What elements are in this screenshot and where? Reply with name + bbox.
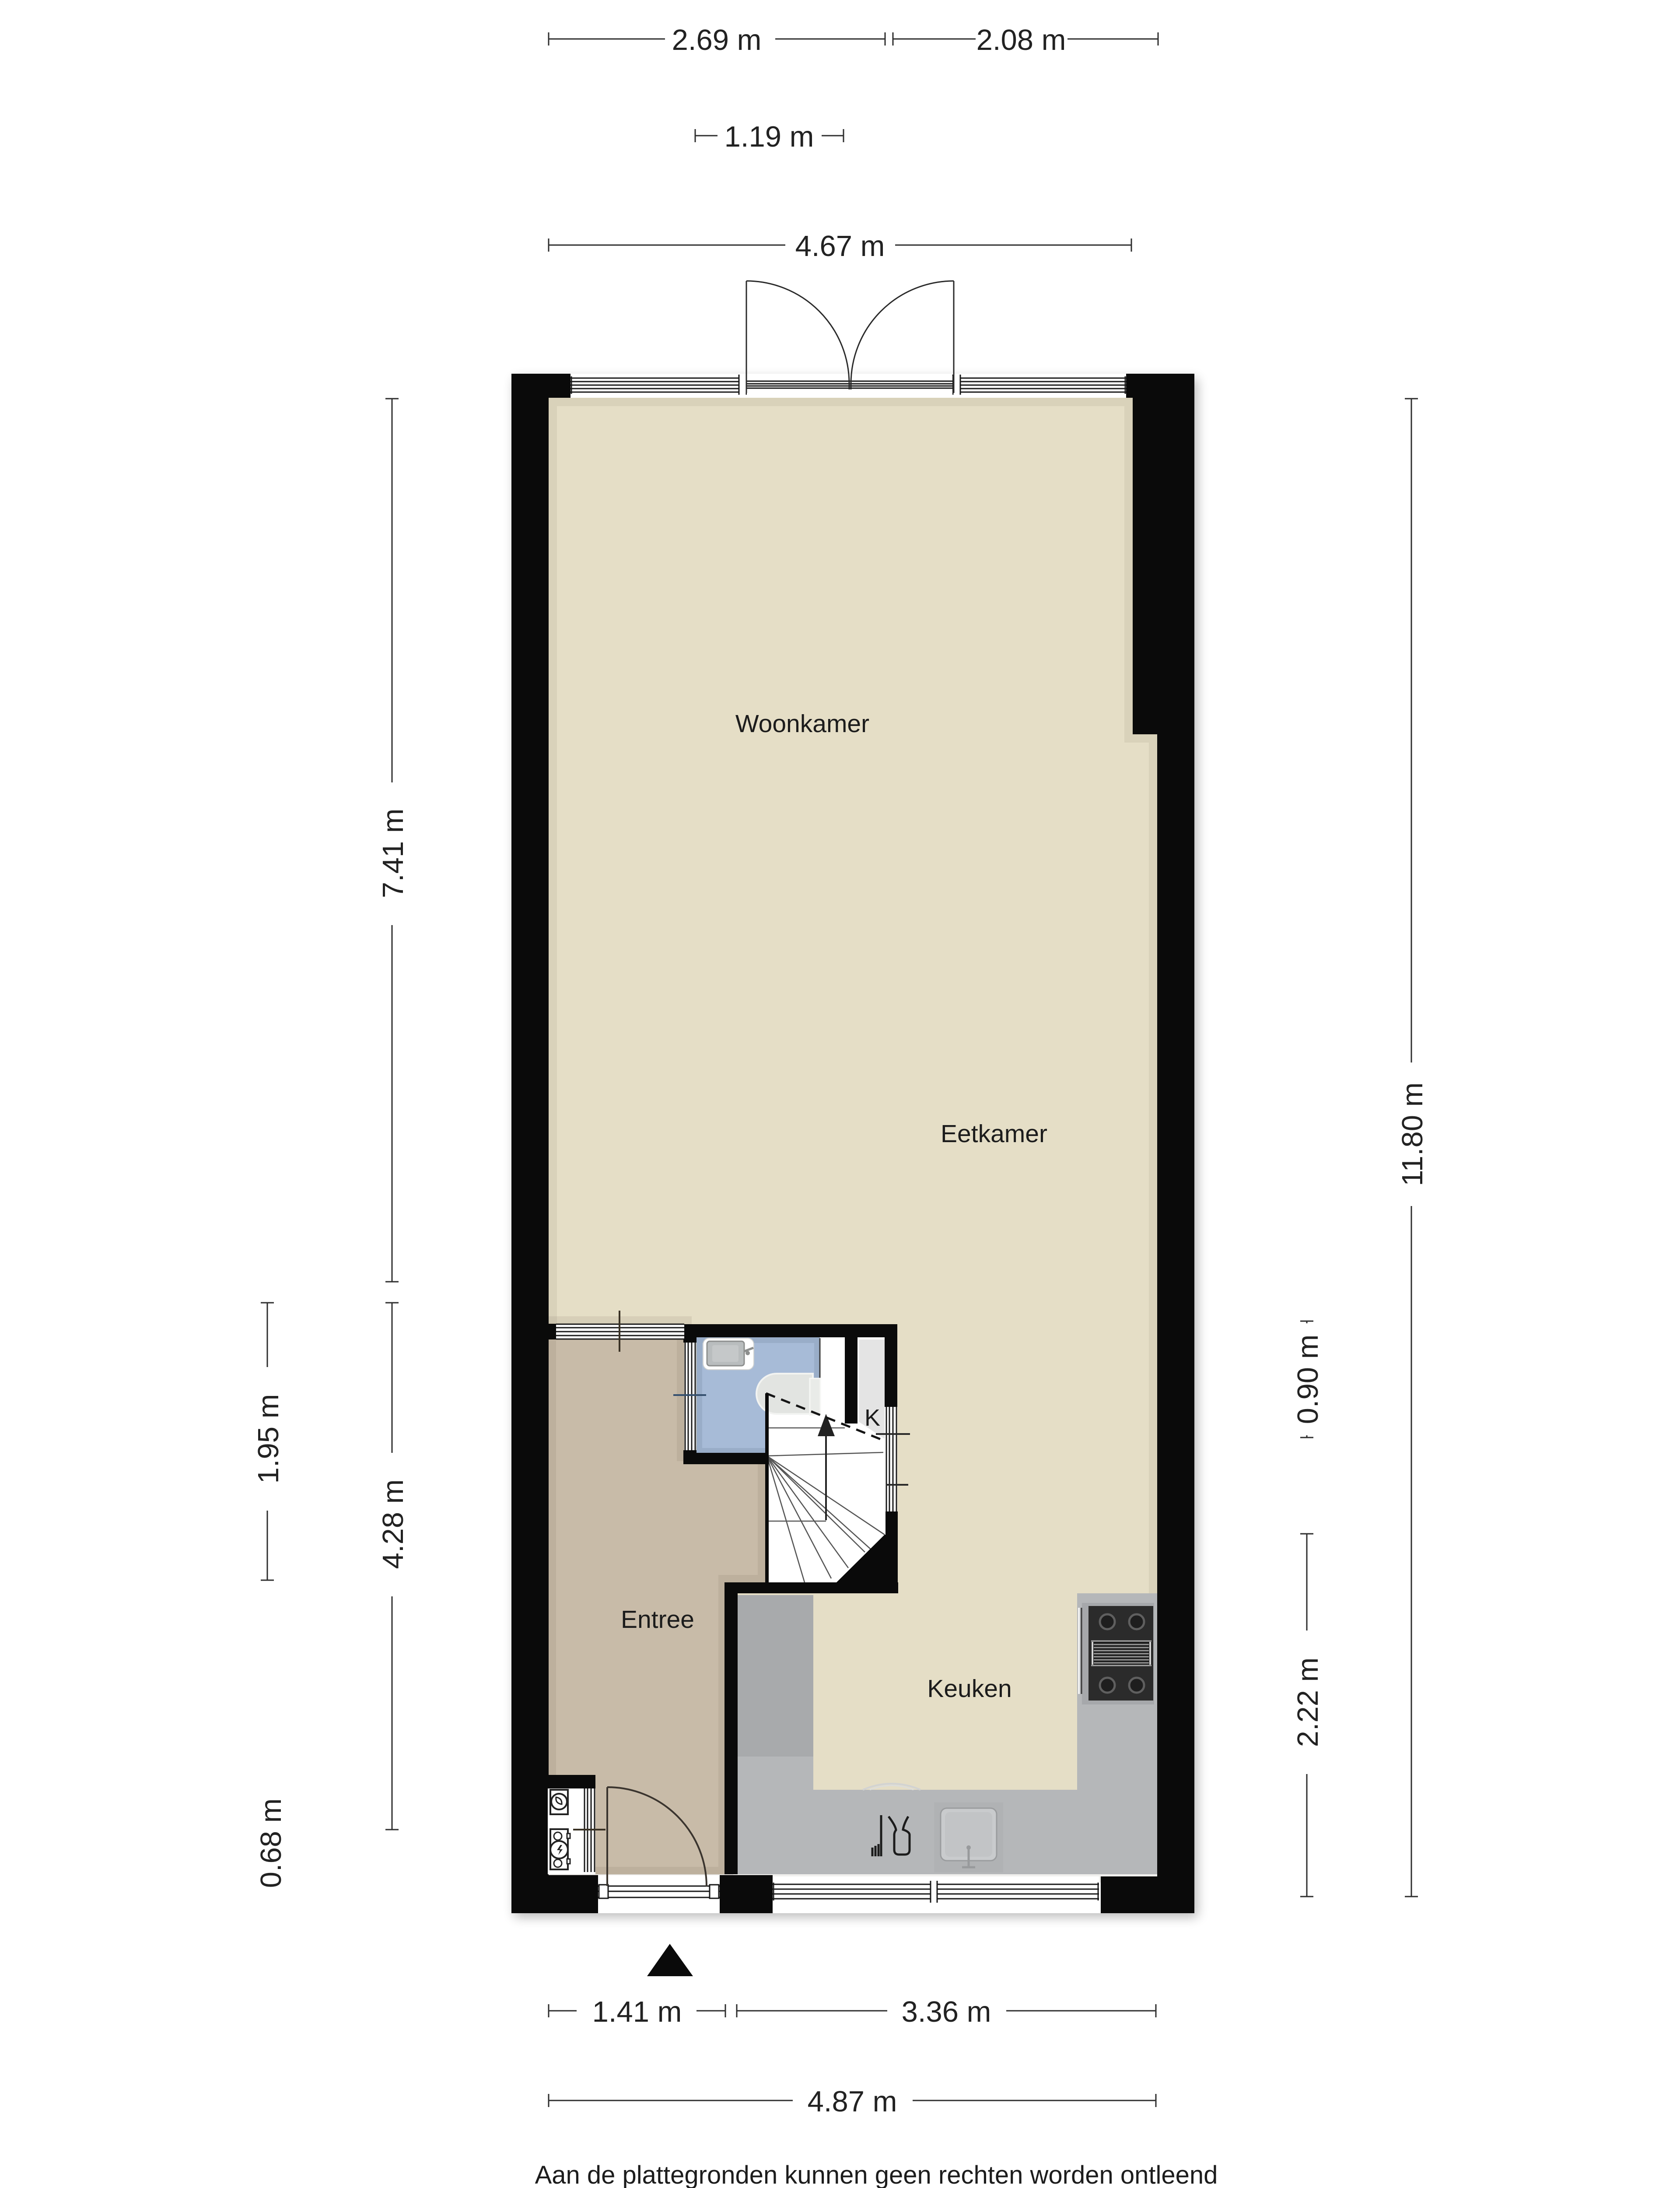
svg-text:2.08 m: 2.08 m — [976, 24, 1066, 56]
svg-text:11.80 m: 11.80 m — [1396, 1082, 1429, 1186]
svg-text:0.68 m: 0.68 m — [255, 1799, 287, 1888]
svg-text:Aan de plattegronden kunnen ge: Aan de plattegronden kunnen geen rechten… — [535, 2161, 1218, 2188]
svg-text:4.67 m: 4.67 m — [795, 230, 885, 263]
svg-text:2.69 m: 2.69 m — [672, 24, 762, 56]
svg-text:Eetkamer: Eetkamer — [941, 1120, 1047, 1148]
svg-text:1.95 m: 1.95 m — [252, 1394, 285, 1484]
svg-text:7.41 m: 7.41 m — [377, 809, 409, 898]
svg-text:4.87 m: 4.87 m — [808, 2085, 897, 2118]
svg-text:Keuken: Keuken — [927, 1675, 1011, 1703]
svg-text:K: K — [864, 1405, 880, 1431]
svg-text:3.36 m: 3.36 m — [902, 1995, 991, 2028]
svg-text:0.90 m: 0.90 m — [1291, 1335, 1324, 1424]
svg-text:4.28 m: 4.28 m — [377, 1480, 409, 1569]
svg-text:Entree: Entree — [621, 1606, 694, 1634]
svg-text:2.22 m: 2.22 m — [1291, 1658, 1324, 1747]
svg-text:1.19 m: 1.19 m — [724, 120, 814, 153]
svg-text:1.41 m: 1.41 m — [592, 1995, 682, 2028]
svg-text:Woonkamer: Woonkamer — [735, 710, 869, 738]
